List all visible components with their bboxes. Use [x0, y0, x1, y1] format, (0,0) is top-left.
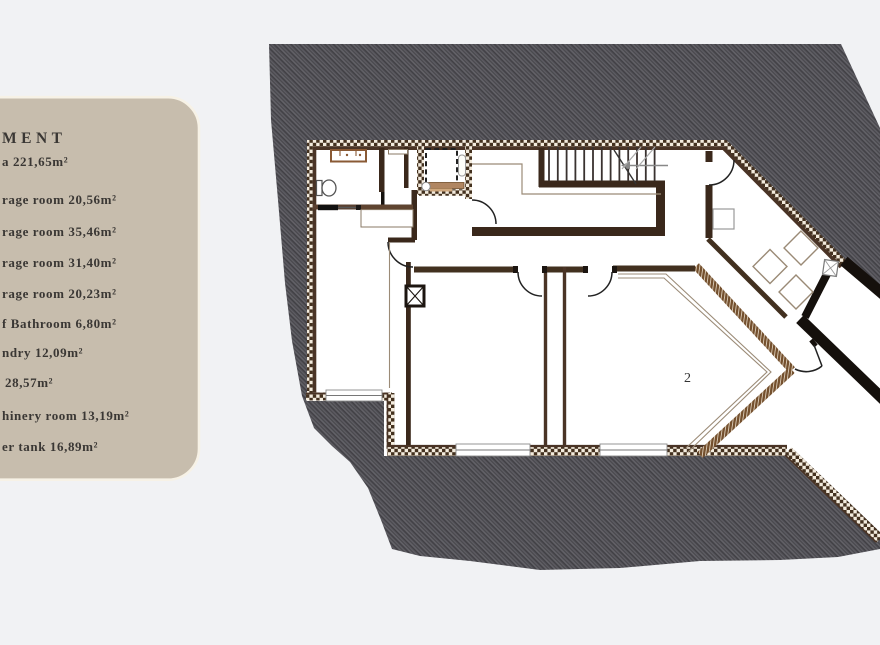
svg-text:rage room 20,23m²: rage room 20,23m²	[2, 286, 117, 301]
svg-text:rage room 35,46m²: rage room 35,46m²	[2, 224, 117, 239]
svg-text:rage room 31,40m²: rage room 31,40m²	[2, 255, 117, 270]
svg-text:er tank 16,89m²: er tank 16,89m²	[2, 439, 98, 454]
svg-text:hinery room 13,19m²: hinery room 13,19m²	[2, 408, 129, 423]
svg-text:f Bathroom 6,80m²: f Bathroom 6,80m²	[2, 316, 117, 331]
svg-text:2: 2	[684, 371, 691, 386]
svg-text:a 221,65m²: a 221,65m²	[2, 154, 68, 169]
svg-text:28,57m²: 28,57m²	[5, 375, 53, 390]
svg-text:ndry 12,09m²: ndry 12,09m²	[2, 345, 83, 360]
svg-text:rage room 20,56m²: rage room 20,56m²	[2, 192, 117, 207]
svg-text:MENT: MENT	[2, 130, 67, 147]
